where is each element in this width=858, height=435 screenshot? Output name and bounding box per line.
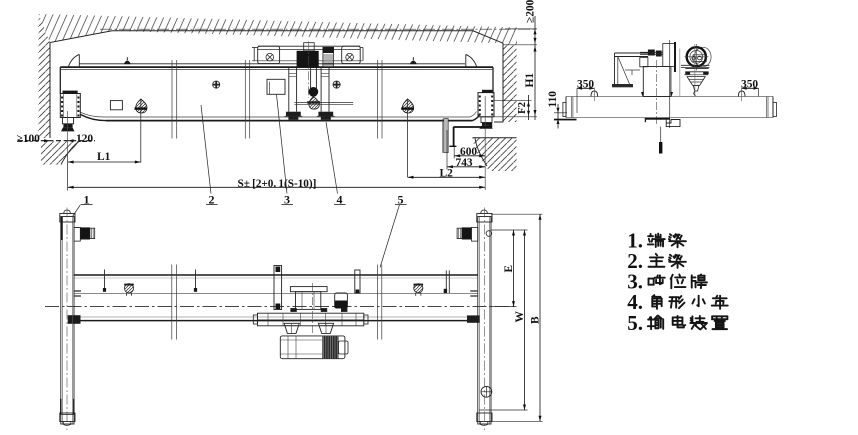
svg-text:350: 350 bbox=[577, 78, 594, 90]
svg-text:S± [2+0. 1(S-10)]: S± [2+0. 1(S-10)] bbox=[238, 178, 317, 190]
svg-text:120: 120 bbox=[76, 133, 93, 145]
svg-text:4: 4 bbox=[337, 192, 343, 206]
svg-text:H1: H1 bbox=[524, 73, 536, 88]
svg-text:≥200: ≥200 bbox=[525, 0, 537, 23]
svg-text:B: B bbox=[530, 316, 542, 324]
svg-text:3: 3 bbox=[284, 192, 290, 206]
svg-text:W: W bbox=[514, 311, 526, 323]
svg-text:E: E bbox=[503, 265, 515, 273]
svg-text:L1: L1 bbox=[97, 151, 111, 163]
svg-text:1: 1 bbox=[84, 192, 90, 206]
svg-text:5.: 5. bbox=[627, 311, 643, 335]
svg-text:110: 110 bbox=[547, 91, 559, 108]
svg-text:350: 350 bbox=[741, 78, 758, 90]
svg-text:≥100: ≥100 bbox=[17, 133, 41, 145]
svg-text:5: 5 bbox=[398, 192, 404, 206]
svg-text:L2: L2 bbox=[440, 168, 454, 180]
svg-text:2: 2 bbox=[209, 192, 215, 206]
svg-text:743: 743 bbox=[456, 157, 473, 169]
svg-text:F2: F2 bbox=[516, 102, 528, 114]
